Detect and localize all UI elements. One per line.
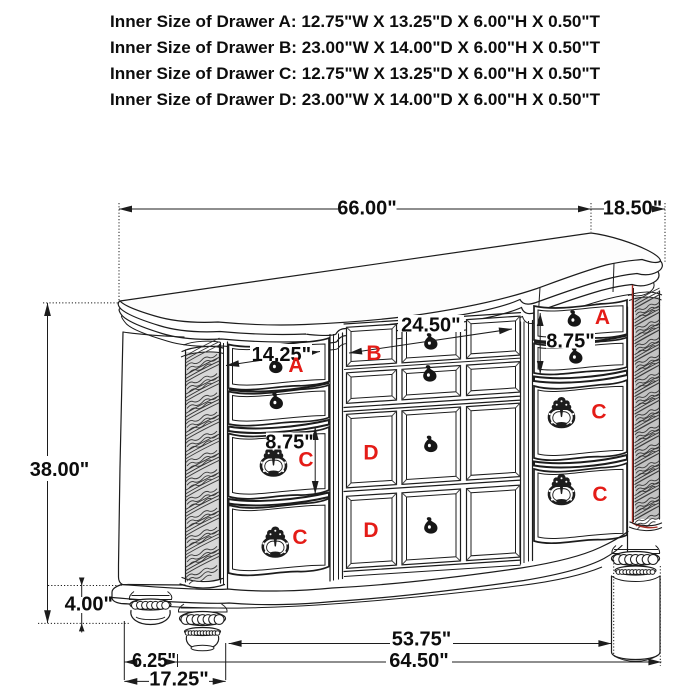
- svg-text:53.75": 53.75": [392, 629, 452, 651]
- svg-text:Inner Size of Drawer C: 12.75": Inner Size of Drawer C: 12.75"W X 13.25"…: [110, 64, 601, 83]
- svg-text:D: D: [363, 442, 378, 465]
- svg-text:38.00": 38.00": [30, 459, 90, 481]
- svg-text:C: C: [591, 401, 606, 424]
- svg-text:B: B: [366, 342, 381, 365]
- svg-text:24.50": 24.50": [401, 315, 461, 337]
- svg-text:4.00": 4.00": [65, 594, 113, 616]
- svg-text:C: C: [298, 449, 313, 472]
- svg-text:A: A: [595, 306, 610, 329]
- svg-text:18.50": 18.50": [603, 198, 663, 220]
- svg-text:C: C: [592, 483, 607, 506]
- svg-text:64.50": 64.50": [389, 650, 449, 672]
- svg-text:D: D: [363, 519, 378, 542]
- svg-text:8.75": 8.75": [546, 331, 594, 353]
- svg-text:Inner Size of Drawer B: 23.00": Inner Size of Drawer B: 23.00"W X 14.00"…: [110, 38, 601, 57]
- svg-text:Inner Size of Drawer A: 12.75": Inner Size of Drawer A: 12.75"W X 13.25"…: [110, 12, 601, 31]
- svg-text:Inner Size of Drawer D: 23.00": Inner Size of Drawer D: 23.00"W X 14.00"…: [110, 90, 601, 109]
- svg-text:C: C: [292, 526, 307, 549]
- svg-text:66.00": 66.00": [337, 198, 397, 220]
- svg-text:17.25": 17.25": [149, 669, 209, 691]
- svg-text:A: A: [288, 354, 303, 377]
